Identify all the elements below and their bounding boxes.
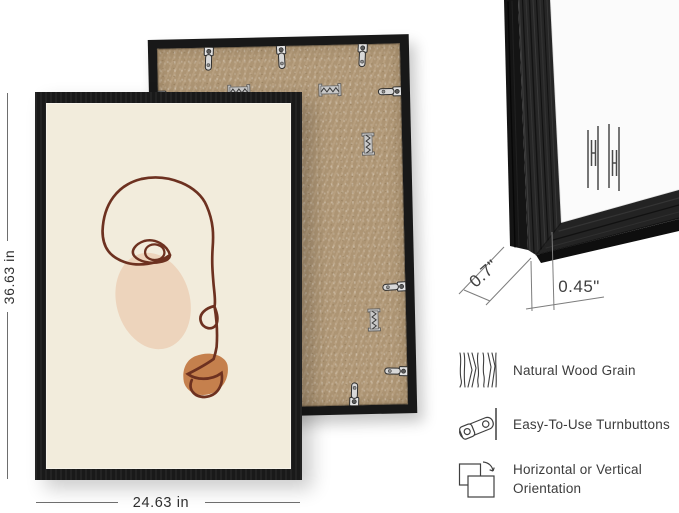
feature-label: Natural Wood Grain	[513, 361, 636, 380]
sawtooth-hanger-icon	[319, 84, 341, 96]
feature-label: Easy-To-Use Turnbuttons	[513, 415, 670, 434]
feature-row-orientation: Horizontal or Vertical Orientation	[456, 459, 679, 499]
frame-front-view	[35, 92, 302, 480]
line-art-face	[47, 104, 290, 468]
turnbutton-icon	[456, 406, 500, 442]
width-dimension-line-right	[205, 502, 300, 503]
height-dimension-label: 36.63 in	[1, 250, 17, 305]
wood-grain-icon	[456, 352, 500, 388]
sawtooth-hanger-icon	[368, 309, 380, 331]
orientation-icon	[456, 459, 500, 499]
turnbutton-icon	[357, 43, 367, 66]
turnbutton-icon	[383, 282, 406, 292]
sawtooth-hanger-icon	[362, 133, 374, 155]
height-dimension-line-bottom	[7, 312, 8, 479]
product-image: 36.63 in 24.63 in	[0, 0, 679, 513]
feature-label: Horizontal or Vertical Orientation	[513, 460, 679, 498]
feature-row-wood-grain: Natural Wood Grain	[456, 352, 636, 388]
turnbutton-icon	[385, 366, 408, 375]
face-width-dimension-label: 0.45"	[558, 277, 600, 297]
width-dimension-label: 24.63 in	[133, 495, 189, 511]
turnbutton-icon	[350, 383, 360, 406]
turnbutton-icon	[276, 45, 286, 68]
glass-panel	[550, 0, 679, 223]
turnbutton-icon	[204, 47, 214, 70]
turnbutton-icon	[378, 87, 401, 97]
width-dimension-line-left	[36, 502, 118, 503]
height-dimension-line-top	[7, 93, 8, 241]
feature-row-turnbuttons: Easy-To-Use Turnbuttons	[456, 406, 670, 442]
poster-artwork	[46, 103, 291, 469]
